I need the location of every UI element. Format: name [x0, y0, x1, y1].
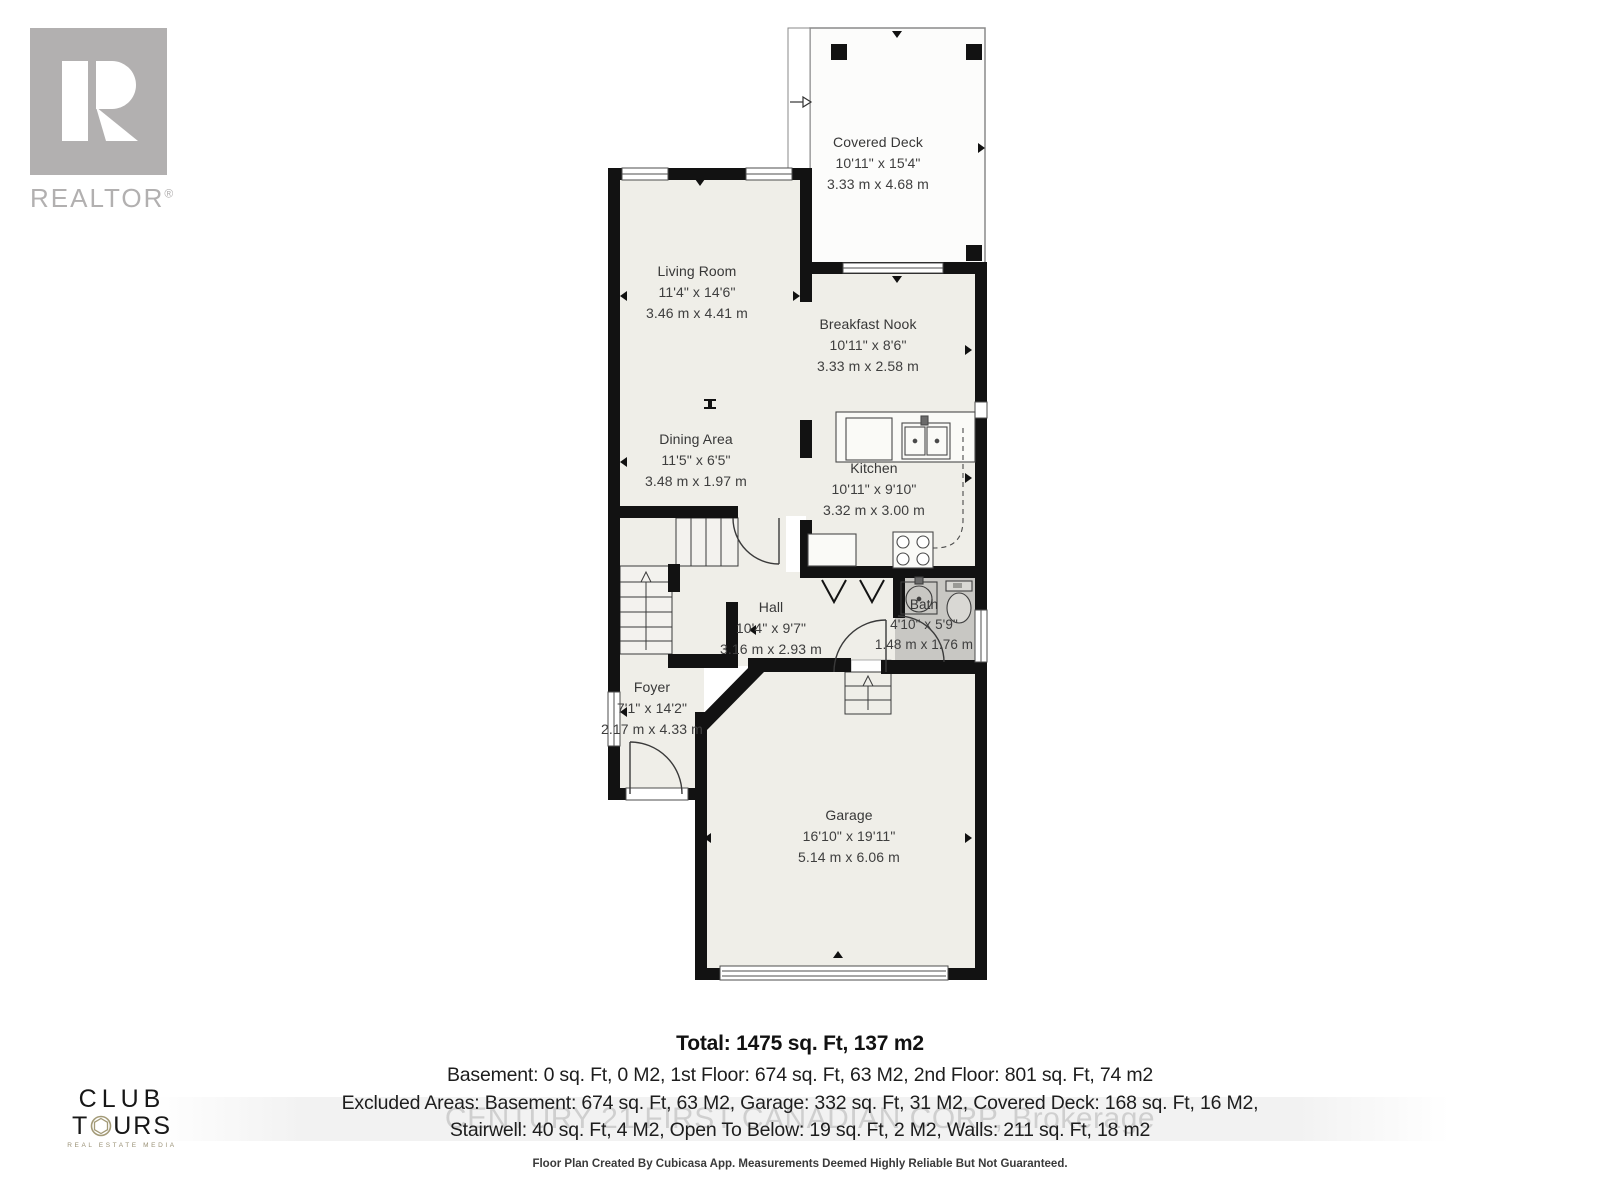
realtor-r-icon	[30, 28, 167, 175]
realtor-text: REALTOR	[30, 183, 164, 213]
wall-bath-south	[881, 660, 987, 674]
deck-post	[966, 245, 982, 261]
wall-bath-west	[893, 566, 905, 618]
summary-total: Total: 1475 sq. Ft, 137 m2	[0, 1032, 1600, 1056]
wall-stair-top	[608, 506, 738, 518]
registered-mark: ®	[164, 186, 175, 200]
kitchen-counter-lower	[808, 534, 856, 566]
wall-garage-west	[695, 712, 707, 980]
front-door-sill	[626, 788, 688, 800]
wall-living-east	[800, 168, 812, 274]
wall-divider-stub	[800, 420, 812, 458]
fridge	[846, 418, 892, 460]
nook-wall-break	[975, 402, 987, 418]
wall-stair-bottom	[668, 654, 738, 668]
faucet-icon	[921, 416, 928, 425]
deck-post	[831, 44, 847, 60]
deck-post	[966, 44, 982, 60]
wall-stair-stub	[668, 564, 680, 592]
summary-excluded-areas-2: Stairwell: 40 sq. Ft, 4 M2, Open To Belo…	[0, 1119, 1600, 1142]
summary-excluded-areas: Excluded Areas: Basement: 674 sq. Ft, 63…	[0, 1092, 1600, 1115]
wall-divider-stub	[800, 274, 812, 302]
wall-garage-east	[975, 660, 987, 980]
garage-door	[720, 966, 948, 980]
disclaimer-text: Floor Plan Created By Cubicasa App. Meas…	[0, 1158, 1600, 1170]
realtor-logo: REALTOR®	[30, 28, 170, 214]
covered-deck-area	[788, 28, 985, 266]
floorplan-drawing	[0, 0, 1600, 1200]
bath-faucet-icon	[915, 577, 923, 584]
floorplan-page: Covered Deck 10'11" x 15'4" 3.33 m x 4.6…	[0, 0, 1600, 1200]
toilet-bowl	[947, 593, 971, 623]
realtor-wordmark: REALTOR®	[30, 183, 170, 214]
club-tours-tagline: REAL ESTATE MEDIA	[58, 1142, 186, 1149]
summary-floors: Basement: 0 sq. Ft, 0 M2, 1st Floor: 674…	[0, 1064, 1600, 1087]
